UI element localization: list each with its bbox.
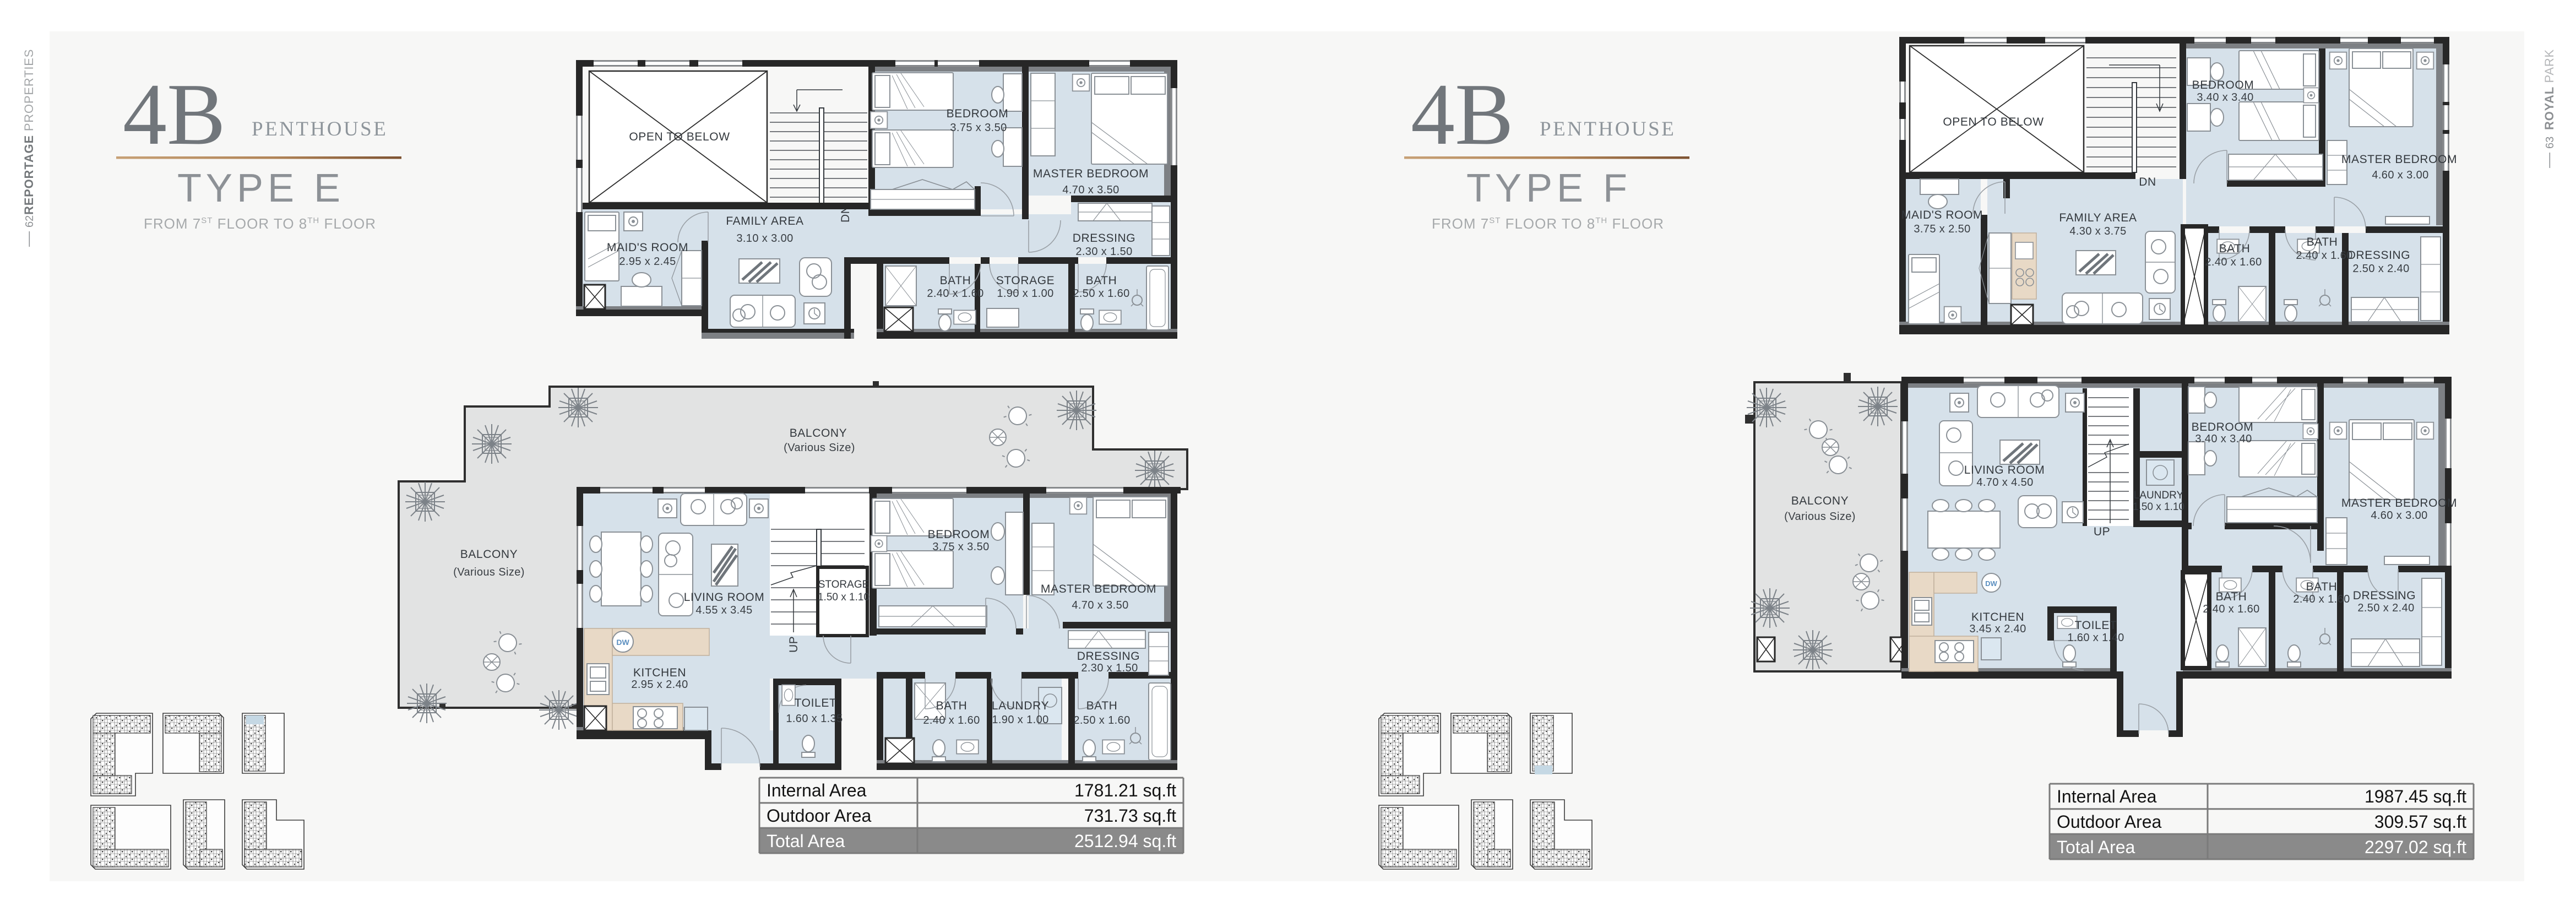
svg-text:4.70 x 3.50: 4.70 x 3.50: [1072, 599, 1128, 611]
svg-text:TOILET: TOILET: [2075, 619, 2117, 632]
svg-text:ROYAL PARK: ROYAL PARK: [2542, 49, 2556, 130]
svg-text:BEDROOM: BEDROOM: [2192, 421, 2254, 433]
svg-text:BATH: BATH: [2216, 590, 2247, 603]
svg-text:BATH: BATH: [1086, 699, 1118, 712]
svg-text:MAID'S ROOM: MAID'S ROOM: [1901, 209, 1983, 221]
svg-text:1.50 x 1.10: 1.50 x 1.10: [2133, 501, 2184, 513]
svg-text:DRESSING: DRESSING: [1077, 650, 1140, 663]
svg-text:BEDROOM: BEDROOM: [2192, 79, 2254, 91]
svg-text:LIVING ROOM: LIVING ROOM: [684, 591, 765, 604]
svg-text:309.57 sq.ft: 309.57 sq.ft: [2374, 812, 2466, 832]
svg-text:2.40 x 1.60: 2.40 x 1.60: [927, 288, 983, 300]
svg-text:3.45 x 2.40: 3.45 x 2.40: [1969, 623, 2026, 635]
svg-text:Outdoor Area: Outdoor Area: [767, 806, 872, 826]
svg-text:1.60 x 1.40: 1.60 x 1.40: [2067, 632, 2124, 644]
svg-text:BATH: BATH: [936, 699, 968, 712]
svg-text:Internal Area: Internal Area: [767, 780, 867, 800]
svg-text:DW: DW: [1985, 579, 1997, 588]
svg-text:2.30 x 1.50: 2.30 x 1.50: [1075, 246, 1132, 258]
svg-text:KITCHEN: KITCHEN: [1971, 611, 2024, 623]
svg-text:DRESSING: DRESSING: [1073, 232, 1136, 245]
svg-text:BEDROOM: BEDROOM: [947, 107, 1009, 120]
svg-text:DN: DN: [2139, 176, 2156, 188]
svg-text:DW: DW: [616, 638, 629, 647]
svg-text:3.75 x 3.50: 3.75 x 3.50: [950, 122, 1007, 134]
svg-text:TYPE F: TYPE F: [1466, 166, 1632, 210]
svg-text:DRESSING: DRESSING: [2347, 249, 2411, 262]
svg-text:2.40 x 1.60: 2.40 x 1.60: [2296, 250, 2352, 262]
svg-text:3.40 x 3.40: 3.40 x 3.40: [2195, 433, 2252, 445]
svg-text:1.90 x 1.00: 1.90 x 1.00: [997, 288, 1053, 300]
svg-text:LIVING ROOM: LIVING ROOM: [1964, 464, 2045, 476]
svg-text:2.50 x 1.60: 2.50 x 1.60: [1073, 714, 1130, 726]
svg-text:2.50 x 2.40: 2.50 x 2.40: [2352, 263, 2409, 275]
svg-text:KITCHEN: KITCHEN: [633, 666, 686, 679]
svg-text:4B: 4B: [123, 65, 226, 163]
svg-text:3.40 x 3.40: 3.40 x 3.40: [2197, 91, 2253, 104]
svg-text:63: 63: [2544, 137, 2556, 149]
svg-text:BEDROOM: BEDROOM: [928, 528, 990, 541]
svg-text:BATH: BATH: [940, 274, 971, 287]
svg-text:4B: 4B: [1411, 65, 1514, 163]
svg-text:DRESSING: DRESSING: [2353, 589, 2416, 602]
svg-text:2.95 x 2.45: 2.95 x 2.45: [619, 256, 676, 268]
svg-text:2.50 x 1.60: 2.50 x 1.60: [1073, 288, 1129, 300]
svg-text:STORAGE: STORAGE: [818, 579, 869, 590]
svg-text:OPEN TO BELOW: OPEN TO BELOW: [629, 131, 730, 143]
svg-text:FROM 7ST FLOOR TO 8TH FLOOR: FROM 7ST FLOOR TO 8TH FLOOR: [1432, 215, 1664, 232]
svg-text:UP: UP: [2094, 525, 2110, 538]
svg-text:FAMILY AREA: FAMILY AREA: [726, 215, 803, 227]
svg-text:FAMILY AREA: FAMILY AREA: [2059, 212, 2137, 224]
svg-text:OPEN TO BELOW: OPEN TO BELOW: [1943, 116, 2044, 128]
svg-text:MASTER BEDROOM: MASTER BEDROOM: [1041, 583, 1156, 595]
svg-text:BALCONY: BALCONY: [790, 427, 847, 440]
svg-text:731.73 sq.ft: 731.73 sq.ft: [1084, 806, 1176, 826]
svg-text:STORAGE: STORAGE: [996, 274, 1055, 287]
svg-text:MASTER BEDROOM: MASTER BEDROOM: [2341, 497, 2457, 509]
svg-text:3.75 x 3.50: 3.75 x 3.50: [932, 541, 989, 553]
svg-text:4.70 x 3.50: 4.70 x 3.50: [1062, 184, 1119, 196]
svg-text:(Various Size): (Various Size): [784, 442, 855, 454]
svg-text:2512.94 sq.ft: 2512.94 sq.ft: [1074, 831, 1176, 851]
svg-text:Total Area: Total Area: [2057, 837, 2135, 857]
svg-text:TYPE E: TYPE E: [177, 166, 345, 210]
svg-text:BALCONY: BALCONY: [1791, 495, 1849, 507]
svg-text:2.40 x 1.60: 2.40 x 1.60: [2293, 593, 2350, 605]
svg-text:BATH: BATH: [2219, 242, 2251, 255]
svg-text:Total Area: Total Area: [767, 831, 845, 851]
svg-text:(Various Size): (Various Size): [453, 566, 525, 578]
svg-text:PENTHOUSE: PENTHOUSE: [252, 118, 388, 140]
svg-text:1.90 x 1.00: 1.90 x 1.00: [992, 714, 1048, 726]
svg-text:BATH: BATH: [2306, 581, 2338, 593]
svg-text:3.10 x 3.00: 3.10 x 3.00: [736, 232, 793, 245]
svg-text:2.40 x 1.60: 2.40 x 1.60: [2203, 603, 2259, 615]
svg-text:REPORTAGE PROPERTIES: REPORTAGE PROPERTIES: [22, 49, 36, 215]
svg-text:BATH: BATH: [2307, 236, 2338, 248]
svg-text:2.95 x 2.40: 2.95 x 2.40: [631, 679, 688, 691]
svg-text:MASTER BEDROOM: MASTER BEDROOM: [1033, 167, 1149, 180]
svg-text:2.30 x 1.50: 2.30 x 1.50: [1081, 662, 1138, 674]
svg-text:4.70 x 4.50: 4.70 x 4.50: [1976, 476, 2033, 489]
svg-text:4.60 x 3.00: 4.60 x 3.00: [2371, 509, 2427, 522]
svg-text:PENTHOUSE: PENTHOUSE: [1540, 118, 1676, 140]
svg-text:4.30 x 3.75: 4.30 x 3.75: [2069, 225, 2126, 237]
svg-text:LAUNDRY: LAUNDRY: [2134, 490, 2184, 501]
svg-text:Outdoor Area: Outdoor Area: [2057, 812, 2162, 832]
svg-text:LAUNDRY: LAUNDRY: [992, 699, 1049, 712]
svg-text:2.40 x 1.60: 2.40 x 1.60: [2205, 256, 2262, 268]
svg-text:TOILET: TOILET: [795, 697, 837, 709]
svg-text:3.75 x 2.50: 3.75 x 2.50: [1914, 223, 1970, 235]
svg-text:BATH: BATH: [1086, 274, 1117, 287]
svg-text:2.50 x 2.40: 2.50 x 2.40: [2357, 602, 2414, 614]
svg-text:FROM 7ST FLOOR TO 8TH FLOOR: FROM 7ST FLOOR TO 8TH FLOOR: [144, 215, 376, 232]
svg-text:2.40 x 1.60: 2.40 x 1.60: [923, 714, 980, 726]
svg-text:4.60 x 3.00: 4.60 x 3.00: [2372, 169, 2428, 181]
svg-text:4.55 x 3.45: 4.55 x 3.45: [695, 604, 752, 616]
svg-text:1.50 x 1.10: 1.50 x 1.10: [818, 592, 869, 603]
svg-text:(Various Size): (Various Size): [1784, 511, 1856, 523]
svg-text:1.60 x 1.35: 1.60 x 1.35: [786, 713, 843, 725]
svg-text:Internal Area: Internal Area: [2057, 787, 2157, 806]
svg-text:MASTER BEDROOM: MASTER BEDROOM: [2341, 153, 2457, 166]
svg-text:1781.21 sq.ft: 1781.21 sq.ft: [1074, 780, 1176, 800]
svg-text:62: 62: [24, 215, 36, 227]
svg-text:1987.45 sq.ft: 1987.45 sq.ft: [2365, 787, 2466, 806]
svg-text:2297.02 sq.ft: 2297.02 sq.ft: [2365, 837, 2466, 857]
svg-text:BALCONY: BALCONY: [460, 548, 518, 561]
svg-text:MAID'S ROOM: MAID'S ROOM: [607, 241, 688, 254]
svg-text:UP: UP: [787, 636, 800, 653]
